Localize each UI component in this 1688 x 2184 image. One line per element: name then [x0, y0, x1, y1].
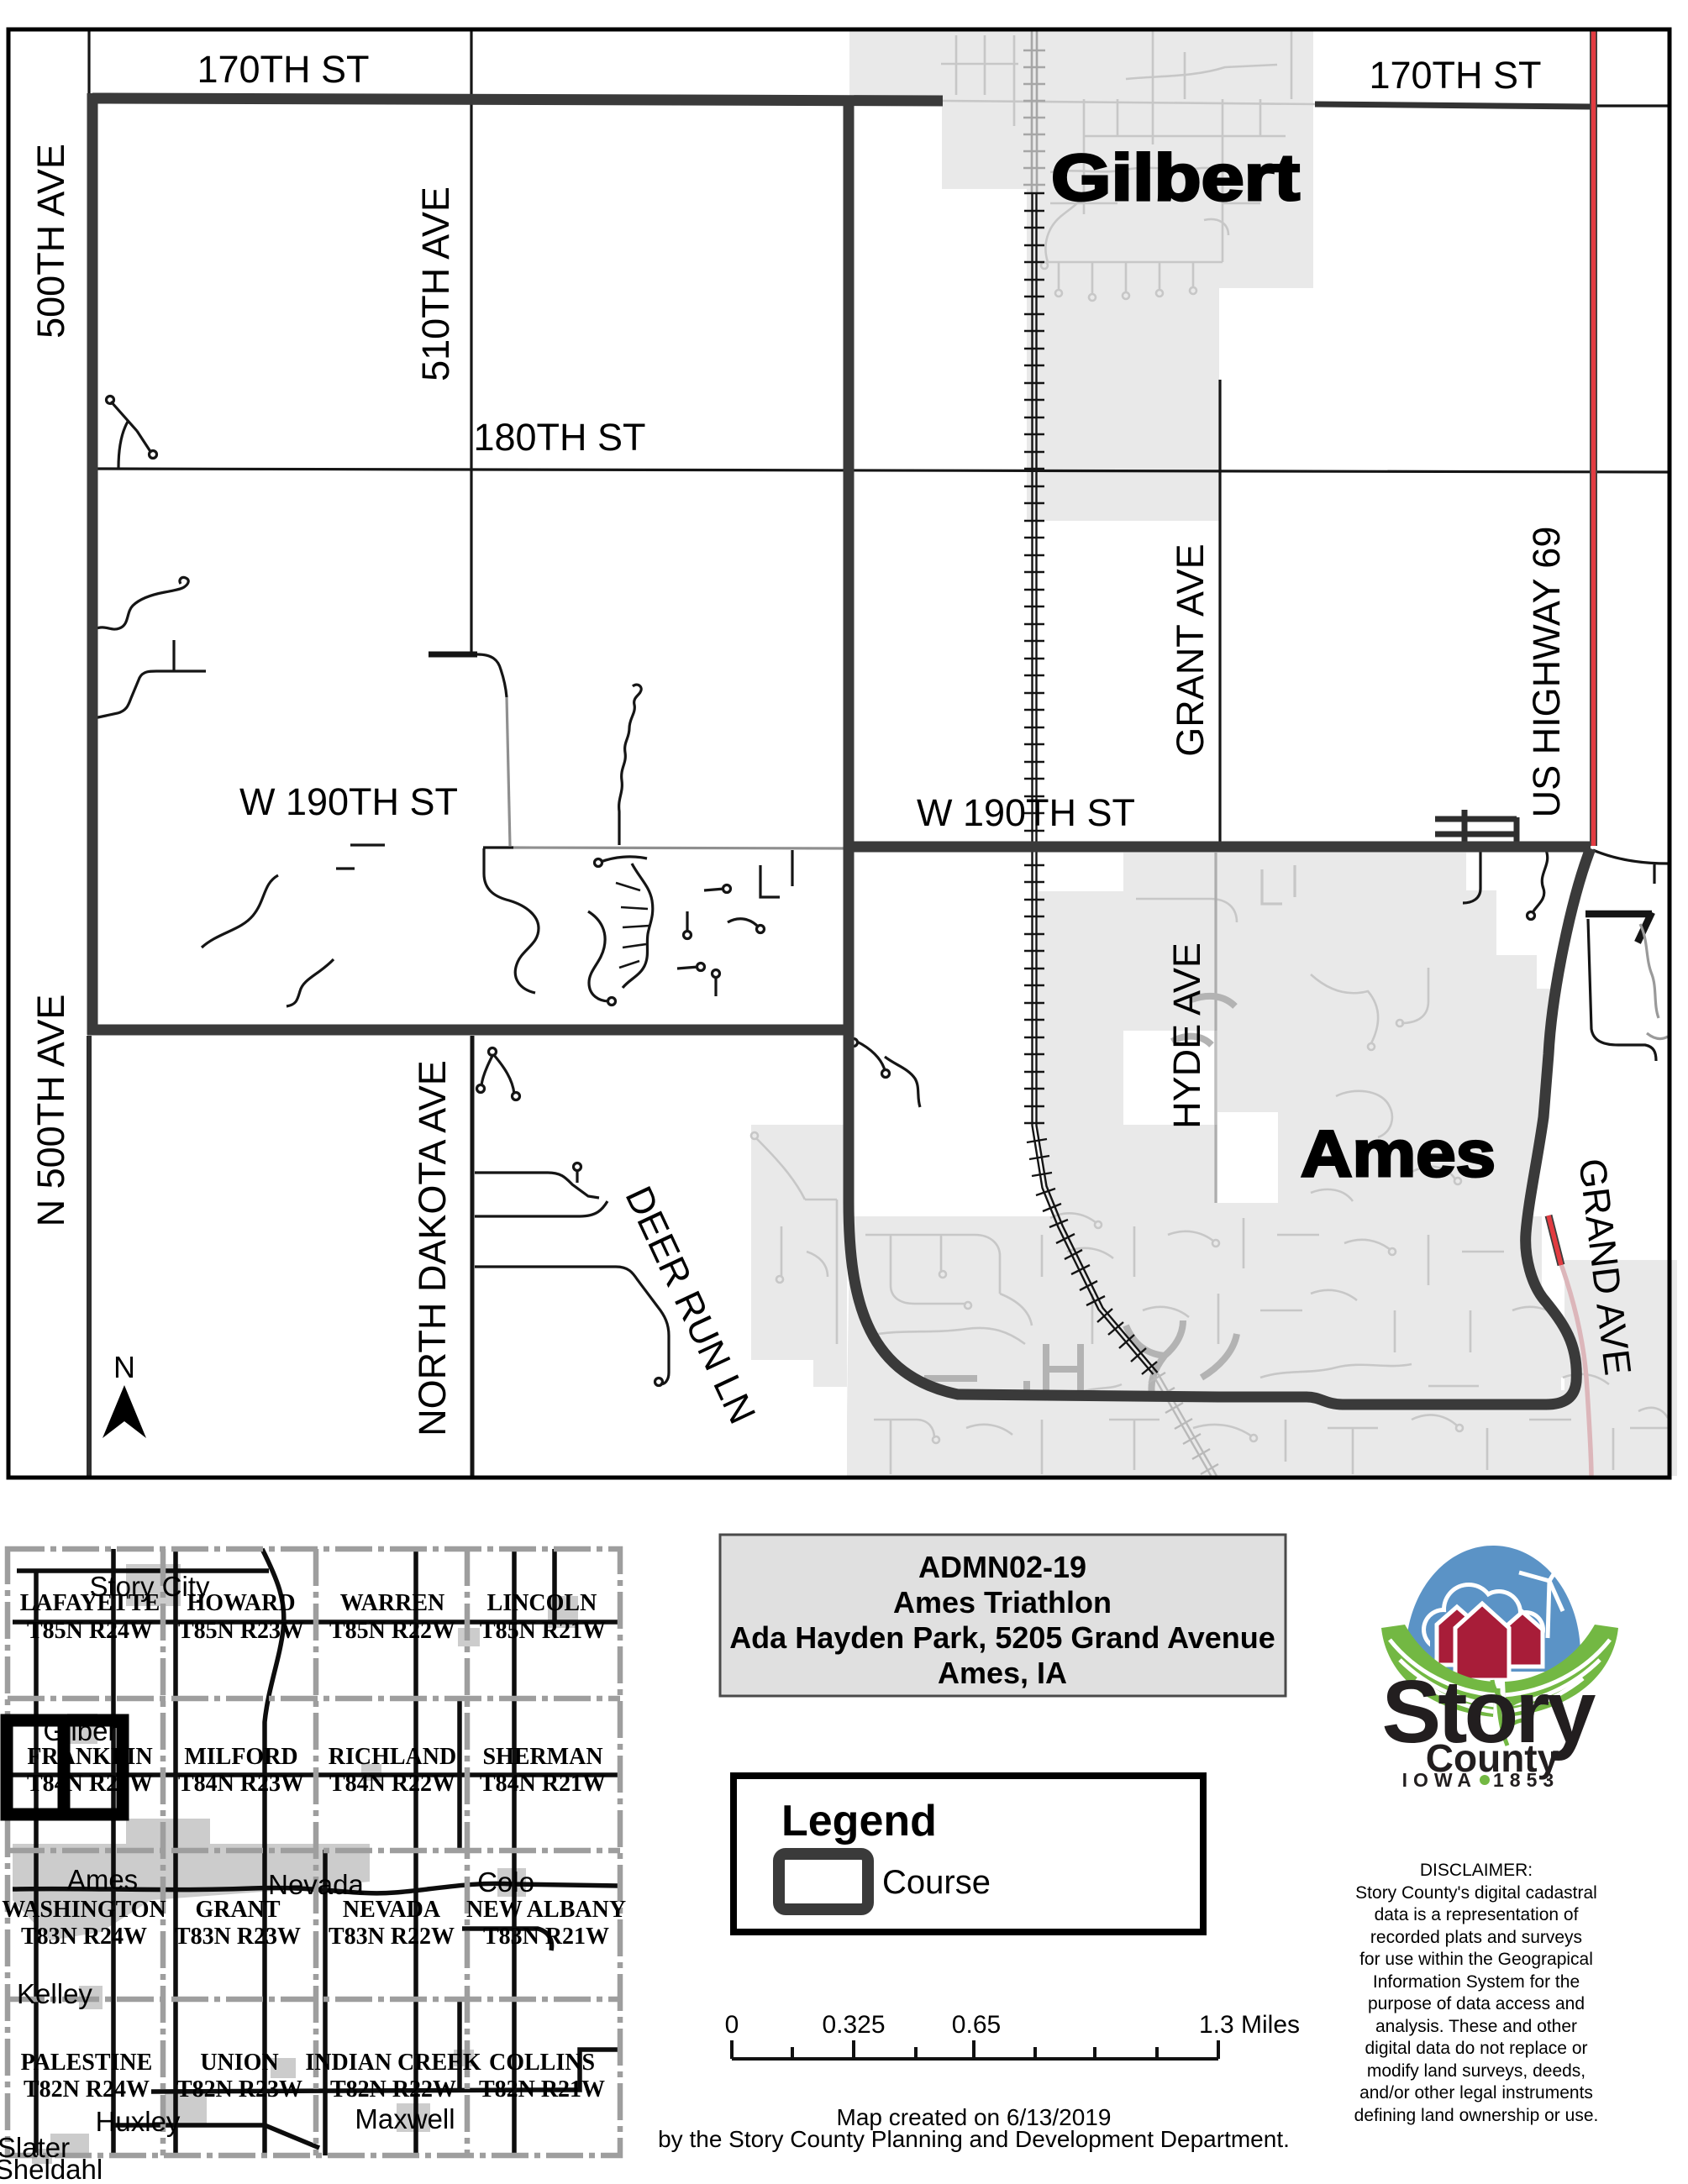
svg-text:data is a representation of: data is a representation of	[1375, 1905, 1579, 1924]
svg-text:T83N R23W: T83N R23W	[175, 1924, 301, 1950]
svg-text:UNION: UNION	[200, 2050, 278, 2076]
svg-text:GRANT AVE: GRANT AVE	[1169, 543, 1212, 756]
svg-text:Ada Hayden Park, 5205 Grand Av: Ada Hayden Park, 5205 Grand Avenue	[729, 1620, 1275, 1655]
svg-text:PALESTINE: PALESTINE	[21, 2050, 153, 2076]
svg-text:Sheldahl: Sheldahl	[0, 2154, 103, 2184]
svg-text:GRANT: GRANT	[195, 1897, 280, 1923]
svg-text:Ames: Ames	[1301, 1116, 1496, 1190]
svg-text:T84N R22W: T84N R22W	[329, 1771, 455, 1797]
svg-text:Story County's digital cadastr: Story County's digital cadastral	[1355, 1883, 1597, 1903]
svg-text:N: N	[113, 1350, 135, 1384]
svg-text:Ames: Ames	[67, 1864, 138, 1895]
svg-text:W 190TH ST: W 190TH ST	[239, 780, 458, 823]
svg-text:T85N R21W: T85N R21W	[480, 1618, 606, 1644]
svg-text:Kelley: Kelley	[17, 1978, 92, 2009]
svg-text:digital data do not replace or: digital data do not replace or	[1365, 2039, 1587, 2058]
svg-text:T84N R23W: T84N R23W	[178, 1771, 304, 1797]
svg-text:LINCOLN: LINCOLN	[487, 1590, 597, 1616]
svg-text:0.325: 0.325	[822, 2011, 885, 2039]
svg-text:0.65: 0.65	[952, 2011, 1001, 2039]
svg-text:Nevada: Nevada	[268, 1869, 364, 1900]
svg-text:NEW ALBANY: NEW ALBANY	[466, 1897, 626, 1923]
svg-text:Ames Triathlon: Ames Triathlon	[893, 1585, 1112, 1620]
svg-text:NEVADA: NEVADA	[343, 1897, 441, 1923]
svg-text:Course: Course	[882, 1864, 991, 1901]
svg-text:US HIGHWAY 69: US HIGHWAY 69	[1525, 527, 1568, 818]
svg-text:T82N R23W: T82N R23W	[176, 2076, 302, 2103]
svg-text:Huxley: Huxley	[96, 2106, 181, 2137]
svg-text:Colo: Colo	[477, 1866, 534, 1898]
svg-text:180TH ST: 180TH ST	[473, 416, 645, 459]
svg-text:T84N R21W: T84N R21W	[480, 1771, 606, 1797]
svg-text:Information System for the: Information System for the	[1373, 1972, 1580, 1992]
svg-text:T82N R22W: T82N R22W	[330, 2076, 456, 2103]
svg-text:RICHLAND: RICHLAND	[329, 1744, 456, 1770]
svg-text:INDIAN CREEK: INDIAN CREEK	[305, 2050, 481, 2076]
svg-text:defining land ownership or use: defining land ownership or use.	[1354, 2106, 1599, 2125]
svg-text:T82N R21W: T82N R21W	[479, 2076, 605, 2103]
svg-text:HYDE AVE: HYDE AVE	[1165, 942, 1208, 1129]
svg-text:purpose of data access and: purpose of data access and	[1368, 1994, 1585, 2013]
svg-text:T85N R22W: T85N R22W	[329, 1618, 455, 1644]
svg-text:DISCLAIMER:: DISCLAIMER:	[1420, 1861, 1533, 1880]
svg-text:recorded plats and surveys: recorded plats and surveys	[1370, 1928, 1582, 1947]
svg-text:FRANKLIN: FRANKLIN	[27, 1744, 152, 1770]
svg-text:1853: 1853	[1493, 1769, 1559, 1791]
svg-text:SHERMAN: SHERMAN	[482, 1744, 602, 1770]
svg-text:T83N R22W: T83N R22W	[329, 1924, 455, 1950]
svg-text:WARREN: WARREN	[340, 1590, 444, 1616]
svg-text:Story City: Story City	[89, 1571, 210, 1602]
svg-text:Legend: Legend	[781, 1797, 937, 1845]
svg-text:COLLINS: COLLINS	[489, 2050, 595, 2076]
svg-text:and/or other legal instruments: and/or other legal instruments	[1359, 2083, 1593, 2103]
svg-text:500TH AVE: 500TH AVE	[29, 144, 72, 339]
svg-text:Gilbert: Gilbert	[1051, 140, 1300, 214]
svg-text:T82N R24W: T82N R24W	[24, 2076, 150, 2103]
svg-text:T83N R21W: T83N R21W	[483, 1924, 609, 1950]
svg-text:0: 0	[725, 2011, 739, 2039]
svg-text:Ames, IA: Ames, IA	[938, 1656, 1067, 1690]
svg-text:Maxwell: Maxwell	[355, 2103, 455, 2134]
svg-text:ADMN02-19: ADMN02-19	[918, 1550, 1086, 1584]
svg-text:by the Story County Planning a: by the Story County Planning and Develop…	[658, 2126, 1290, 2152]
svg-text:WASHINGTON: WASHINGTON	[2, 1897, 166, 1923]
svg-text:for use within the Geograpical: for use within the Geograpical	[1359, 1950, 1593, 1969]
svg-text:NORTH DAKOTA AVE: NORTH DAKOTA AVE	[411, 1060, 454, 1436]
svg-text:N 500TH AVE: N 500TH AVE	[29, 995, 72, 1227]
svg-text:510TH AVE: 510TH AVE	[414, 186, 457, 381]
svg-text:170TH ST: 170TH ST	[1369, 54, 1541, 97]
svg-text:T84N R24W: T84N R24W	[27, 1771, 153, 1797]
svg-text:modify land surveys, deeds,: modify land surveys, deeds,	[1367, 2061, 1585, 2081]
svg-text:T83N R24W: T83N R24W	[21, 1924, 147, 1950]
svg-text:IOWA: IOWA	[1402, 1769, 1477, 1791]
svg-text:1.3 Miles: 1.3 Miles	[1199, 2011, 1300, 2039]
svg-text:170TH ST: 170TH ST	[197, 48, 369, 91]
svg-text:T85N R24W: T85N R24W	[27, 1618, 153, 1644]
svg-text:MILFORD: MILFORD	[184, 1744, 297, 1770]
svg-text:T85N R23W: T85N R23W	[178, 1618, 304, 1644]
svg-text:W 190TH ST: W 190TH ST	[917, 791, 1135, 834]
svg-text:analysis. These and other: analysis. These and other	[1375, 2017, 1577, 2036]
